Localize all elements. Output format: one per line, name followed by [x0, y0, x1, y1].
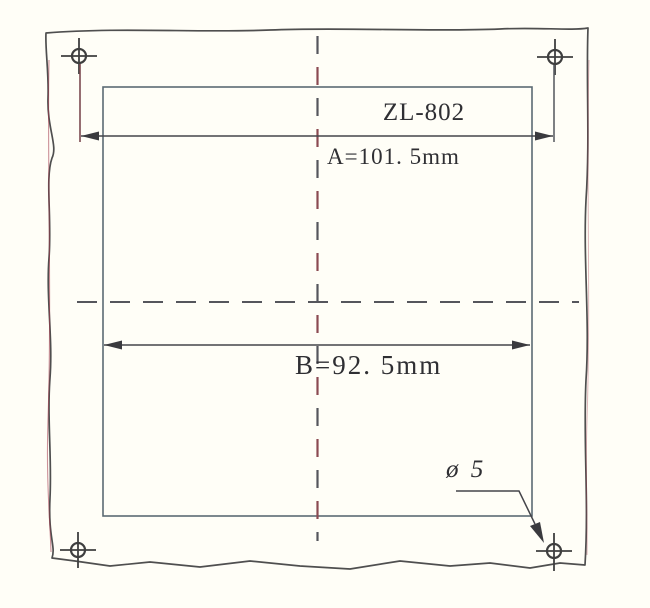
- dimension-a-arrow-right: [535, 132, 553, 141]
- dimension-a-arrow-left: [81, 132, 99, 141]
- mounting-hole-top-right: [537, 39, 573, 75]
- dimension-a-label: A=101. 5mm: [327, 145, 460, 168]
- hole-diameter-label: ø 5: [446, 457, 486, 482]
- mounting-hole-top-left: [61, 38, 97, 74]
- drawing-linework: [0, 0, 650, 608]
- dimension-b-label: B=92. 5mm: [295, 352, 442, 379]
- dimension-b-arrow-left: [104, 341, 122, 350]
- dimension-b-arrow-right: [512, 341, 530, 350]
- hole-diameter-leader: [456, 491, 544, 543]
- panel-cutout-drawing: ZL-802 A=101. 5mm B=92. 5mm ø 5: [0, 0, 650, 608]
- hole-diameter-leader-arrow: [530, 522, 544, 543]
- model-label: ZL-802: [372, 100, 476, 125]
